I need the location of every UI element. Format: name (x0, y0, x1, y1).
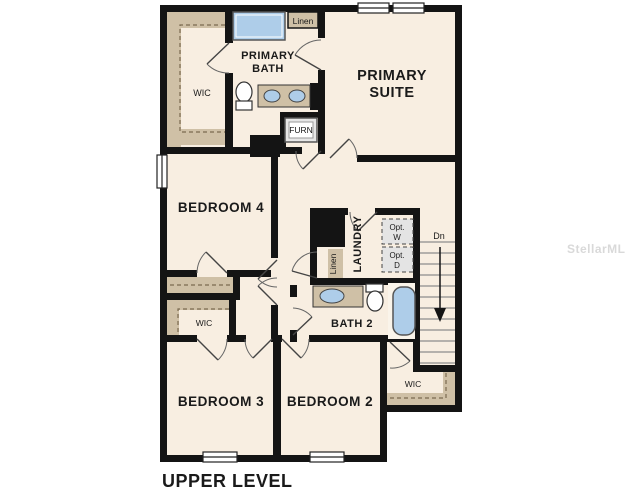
bedroom2-label: BEDROOM 2 (287, 394, 373, 409)
bedroom3-label: BEDROOM 3 (178, 394, 264, 409)
toilet-fixture (367, 291, 383, 311)
primary-suite-label-line1: PRIMARY (357, 68, 427, 84)
wic-primary-label: WIC (193, 88, 211, 98)
linen-hall-label: Linen (328, 253, 338, 274)
primary-bath-label-line1: PRIMARY (241, 50, 295, 62)
linen-top-label: Linen (293, 16, 314, 26)
primary-bath-label-line2: BATH (252, 63, 284, 75)
watermark: StellarMLS (567, 242, 625, 256)
plan-title: UPPER LEVEL (162, 471, 293, 491)
chase (250, 135, 280, 157)
closet-shelf (167, 12, 181, 147)
closet-shelf (387, 393, 455, 405)
opt-washer-label-line1: Opt. (389, 223, 404, 232)
bath2-label: BATH 2 (331, 318, 373, 330)
wic-bedroom3-label: WIC (196, 318, 213, 328)
opt-dryer-label-line2: D (394, 261, 400, 270)
floor-plan: PRIMARY BATH PRIMARY SUITE WIC Linen FUR… (0, 0, 625, 500)
sink-fixture (264, 90, 280, 102)
sink-fixture (289, 90, 305, 102)
toilet-fixture (236, 82, 252, 102)
chase (310, 208, 345, 247)
primary-suite-label-line2: SUITE (369, 85, 414, 101)
shower-fixture (233, 12, 285, 40)
opt-dryer-label-line1: Opt. (389, 251, 404, 260)
floor-plan-svg: PRIMARY BATH PRIMARY SUITE WIC Linen FUR… (0, 0, 625, 500)
opt-washer-label-line2: W (393, 233, 401, 242)
wic-bedroom2-label: WIC (405, 379, 422, 389)
bathtub-fixture (393, 287, 415, 335)
laundry-label: LAUNDRY (352, 215, 364, 272)
stairs-down-label: Dn (433, 231, 445, 241)
chase (310, 83, 323, 110)
bedroom4-label: BEDROOM 4 (178, 200, 264, 215)
furnace-label: FURN (289, 125, 313, 135)
sink-fixture (320, 289, 344, 303)
toilet-tank (236, 101, 252, 110)
